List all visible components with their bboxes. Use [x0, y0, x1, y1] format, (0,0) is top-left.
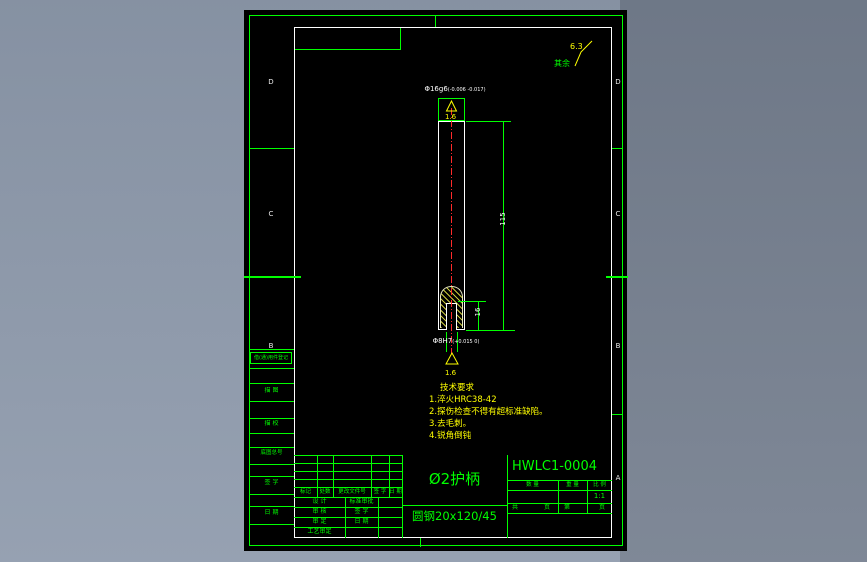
table-line [294, 455, 402, 456]
revision-header: 签 字 [371, 488, 389, 496]
margin-register-label: 借(通)用件登记 [250, 352, 292, 364]
table-line [294, 471, 402, 472]
zone-divider [249, 148, 294, 149]
approval-label: 审 定 [294, 518, 345, 526]
tech-req-title: 技术要求 [440, 381, 474, 393]
centering-tick-bottom [420, 538, 421, 547]
sheet-label: 第 [562, 504, 572, 512]
revision-header: 处数 [317, 488, 333, 496]
qty-header: 比 例 [587, 481, 612, 489]
roughness-symbol-icon: 1.6 [439, 351, 465, 377]
tech-req-item: 3.去毛刺。 [429, 417, 471, 429]
attachment-box-line [295, 49, 401, 50]
margin-block-label: 日 期 [250, 509, 293, 517]
approval-mid: 日 期 [345, 518, 378, 526]
dim-tolerance: (+0.015 0) [452, 339, 479, 345]
margin-block-label: 描 校 [250, 420, 293, 428]
roughness-value: 1.6 [445, 113, 457, 120]
tech-req-item: 1.淬火HRC38-42 [429, 393, 497, 405]
hole-dimension: Φ8H7(+0.015 0) [413, 336, 499, 347]
table-line [378, 497, 379, 538]
hole-depth-dimension: 16 [474, 297, 482, 327]
scale-value: 1:1 [587, 492, 612, 501]
margin-line [249, 476, 294, 477]
zone-letter: A [612, 474, 624, 482]
extension-line [466, 121, 511, 122]
margin-block-label: 底图总号 [250, 449, 293, 457]
zone-letter: B [612, 342, 624, 350]
approval-label: 审 核 [294, 508, 345, 516]
margin-line [249, 524, 294, 525]
margin-line [249, 349, 294, 350]
margin-line [249, 401, 294, 402]
roughness-value: 1.6 [445, 369, 457, 377]
revision-header: 标记 [294, 488, 317, 496]
margin-block-label: 描 图 [250, 387, 293, 395]
dim-main: Φ16g6 [424, 85, 447, 93]
margin-line [249, 433, 294, 434]
extension-line [466, 330, 515, 331]
tech-req-item: 2.探伤检查不得有超标准缺陷。 [429, 405, 548, 417]
margin-line [249, 383, 294, 384]
table-line [402, 455, 403, 538]
diameter-dimension: Φ16g6(-0.006 -0.017) [408, 84, 502, 95]
attachment-box-line [400, 28, 401, 49]
margin-line [249, 464, 294, 465]
margin-line [249, 494, 294, 495]
qty-header: 数 量 [507, 481, 558, 489]
centering-mark-right [606, 276, 628, 278]
zone-letter: C [612, 210, 624, 218]
sheet-label: 共 [510, 504, 520, 512]
sheet-label: 页 [597, 504, 607, 512]
table-line [507, 455, 508, 538]
margin-line [249, 447, 294, 448]
zone-letter: D [612, 78, 624, 86]
sheet-label: 页 [542, 504, 552, 512]
cad-viewer-screen: D C B D C B A 借(通)用件登记 描 图 描 校 底图总号 签 字 … [0, 0, 867, 562]
drawing-number: HWLC1-0004 [512, 459, 608, 475]
table-line [507, 490, 612, 491]
table-line [507, 513, 612, 514]
approval-mid: 标准审批 [345, 498, 378, 506]
roughness-symbol-icon: 1.6 [441, 99, 462, 120]
approval-mid: 签 字 [345, 508, 378, 516]
table-line [402, 505, 507, 506]
margin-line [249, 418, 294, 419]
centerline [451, 108, 452, 354]
dim-main: Φ8H7 [433, 337, 453, 345]
qty-header: 重 量 [558, 481, 587, 489]
zone-letter: C [265, 210, 277, 218]
default-roughness-icon: 6.3 其余 [554, 38, 600, 70]
length-dimension: 115 [499, 205, 507, 233]
approval-label: 设 计 [294, 498, 345, 506]
margin-block-label: 签 字 [250, 479, 293, 487]
table-line [294, 479, 402, 480]
zone-divider [612, 148, 623, 149]
margin-line [249, 506, 294, 507]
revision-header: 日 期 [389, 488, 402, 496]
dim-tolerance: (-0.006 -0.017) [448, 87, 486, 93]
zone-divider [612, 414, 623, 415]
margin-line [249, 368, 294, 369]
table-line [294, 463, 402, 464]
centering-mark-left [244, 276, 301, 278]
approval-label: 工艺审定 [294, 528, 345, 536]
tech-req-item: 4.锐角倒钝 [429, 429, 471, 441]
roughness-value: 6.3 [570, 42, 583, 51]
material-spec: 圆钢20x120/45 [404, 509, 505, 523]
centering-tick-top [435, 15, 436, 27]
part-name: Ø2护柄 [404, 470, 505, 488]
revision-header: 更改文件号 [333, 488, 371, 496]
roughness-prefix: 其余 [554, 58, 570, 68]
zone-letter: D [265, 78, 277, 86]
